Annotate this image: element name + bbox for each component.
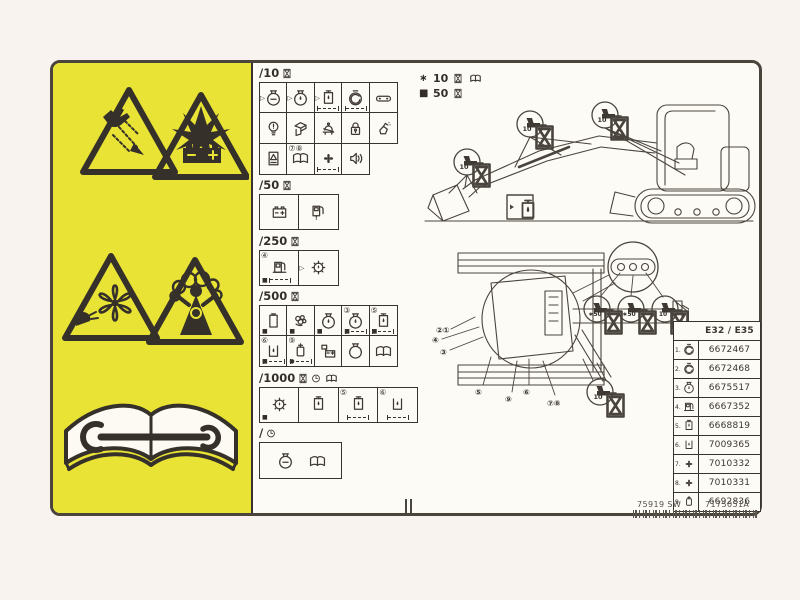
svg-text:∗50: ∗50 — [588, 311, 601, 318]
padlock-icon — [346, 119, 365, 138]
header-spacer — [674, 322, 699, 340]
svg-text:∗50: ∗50 — [622, 311, 635, 318]
battery-icon — [270, 203, 289, 222]
row-number: 1. — [675, 347, 681, 354]
pot-plain-icon — [346, 342, 365, 361]
excavator-side-view-drawing: 10 10 10 — [419, 89, 757, 241]
callout-5: ⑤ — [475, 388, 482, 397]
travel-dashes — [347, 415, 369, 420]
box-drop-icon — [319, 89, 338, 108]
maintenance-task-cell — [341, 82, 370, 114]
maintenance-task-cell: ▷ — [298, 250, 339, 286]
interval-hours-text: /1000 — [259, 372, 295, 385]
part-number: 6672467 — [699, 345, 760, 355]
air-round-icon — [346, 89, 365, 108]
interval-section-: / — [259, 427, 419, 478]
maintenance-task-cell — [314, 112, 343, 144]
part-number: 7010331 — [699, 478, 760, 488]
item-number-badge: ⑤ — [371, 306, 378, 315]
air-round-icon — [682, 343, 696, 357]
part-number: 7010332 — [699, 459, 760, 469]
icon-row: ⑦⑧ — [259, 143, 419, 175]
check-arrow: ▷ — [287, 94, 292, 102]
maintenance-task-cell: ■ — [286, 305, 315, 337]
maintenance-task-cell — [268, 445, 302, 477]
callout-3: ③ — [440, 348, 447, 357]
row-number: 5. — [675, 423, 681, 430]
maintenance-task-cell: ⑦⑧ — [286, 143, 315, 175]
box-drop-icon — [682, 419, 696, 433]
maintenance-task-cell: ▷ — [286, 82, 315, 114]
warning-triangle-entanglement-icon — [149, 260, 241, 342]
svg-text:10: 10 — [522, 125, 532, 133]
grease-callout-10h: 10 — [454, 149, 490, 187]
icon-row: ④■▷ — [259, 250, 419, 286]
pot-drop-icon — [291, 89, 310, 108]
svg-text:10: 10 — [659, 311, 667, 318]
item-number-badge: ⑥ — [379, 388, 386, 397]
barcode — [633, 510, 757, 518]
interval-hours-text: / — [259, 427, 263, 440]
maintenance-task-cell: ③■ — [341, 305, 370, 337]
warning-triangle-injection-icon — [83, 90, 175, 172]
registration-mark — [410, 499, 412, 513]
interval-label: /1000 — [259, 372, 419, 385]
part-number: 6667352 — [699, 402, 760, 412]
travel-dashes — [317, 167, 339, 172]
item-number-badge: ④ — [261, 251, 268, 260]
pump-icon — [682, 400, 696, 414]
interval-marker: ■ — [262, 415, 268, 421]
table-row: 2.6672468 — [674, 360, 760, 379]
icon-row — [259, 194, 419, 230]
pot-dash-icon — [264, 89, 283, 108]
warning-panel — [53, 63, 253, 513]
pump-icon — [270, 258, 289, 277]
air-round-icon — [682, 362, 696, 376]
row-icon-cell: 3. — [674, 379, 699, 397]
parts-table-body: 1.66724672.66724683.66755174.66673525.66… — [674, 341, 760, 511]
book-icon — [468, 72, 483, 85]
maintenance-task-cell — [369, 112, 398, 144]
tank-drop-icon — [682, 438, 696, 452]
row-icon-cell: 5. — [674, 417, 699, 435]
callout-7-8: ⑦⑧ — [547, 399, 561, 408]
grease-callout-10h: 10 — [592, 102, 628, 140]
row-number: 2. — [675, 366, 681, 373]
clock-icon — [311, 372, 321, 385]
maintenance-task-cell: ④■ — [259, 250, 300, 286]
row-number: 3. — [675, 385, 681, 392]
decal-part-number: 7175051A — [705, 500, 749, 509]
link-bar-icon — [374, 89, 393, 108]
icon-row: ■⑤⑥ — [259, 387, 419, 423]
row-number: 8. — [675, 480, 681, 487]
callout-2-1: ②① — [436, 326, 450, 335]
gear-drop-icon — [309, 258, 328, 277]
maintenance-task-cell — [341, 143, 370, 175]
icon-row: ▷▷▷ — [259, 82, 419, 114]
hg-box-icon — [298, 372, 308, 385]
maintenance-task-cell: ▷ — [259, 82, 288, 114]
hg-box-icon — [282, 67, 292, 80]
interval-marker: ■ — [262, 278, 268, 284]
star-bullet: ∗ — [419, 73, 428, 84]
svg-text:10: 10 — [459, 163, 469, 171]
travel-dashes — [269, 278, 291, 283]
grease-fitting-detail-circle — [573, 242, 663, 301]
seatbelt-icon — [319, 119, 338, 138]
battery-box-icon — [319, 342, 338, 361]
model-header: E32 / E35 — [699, 326, 760, 336]
boxed-icon-group — [259, 442, 342, 478]
interval-section-50: /50 — [259, 179, 419, 230]
travel-dashes — [345, 106, 367, 111]
svg-text:10: 10 — [593, 393, 603, 401]
maintenance-task-cell — [341, 112, 370, 144]
grease-callout-50h: ∗50 — [584, 296, 622, 334]
maintenance-task-cell: ⑤ — [338, 387, 379, 423]
hydraulic-check-box-icon — [507, 195, 534, 219]
maintenance-task-cell — [300, 445, 334, 477]
scanned-decal-page: /10▷▷▷⑦⑧/50/250④■▷/500■■■③■⑤■⑥■⑨●/1000■⑤… — [0, 0, 800, 600]
item-number-badge: ⑤ — [340, 388, 347, 397]
part-number: 7009365 — [699, 440, 760, 450]
gear-drop-icon — [270, 395, 289, 414]
travel-dashes — [290, 359, 312, 364]
interval-label: / — [259, 427, 419, 440]
fan-icon — [319, 149, 338, 168]
maintenance-task-cell — [259, 112, 288, 144]
table-row: 3.6675517 — [674, 379, 760, 398]
decal-code-left: 75919 SW — [637, 500, 681, 509]
row-icon-cell: 2. — [674, 360, 699, 378]
grease-callout-10h-bottom: 10 — [583, 359, 624, 417]
travel-dashes — [317, 106, 339, 111]
table-row: 8.7010331 — [674, 474, 760, 493]
row-icon-cell: 8. — [674, 474, 699, 492]
warning-pictograms — [53, 63, 249, 507]
part-number: 6672468 — [699, 364, 760, 374]
hg-box-icon — [282, 179, 292, 192]
travel-dashes — [372, 329, 394, 334]
box-drop-icon — [309, 395, 328, 414]
interval-label: /500 — [259, 290, 419, 303]
row-icon-cell: 1. — [674, 341, 699, 359]
travel-dashes — [387, 415, 409, 420]
table-row: 1.6672467 — [674, 341, 760, 360]
book-icon — [308, 452, 327, 471]
parts-table: E32 / E35 1.66724672.66724683.66755174.6… — [673, 321, 761, 512]
grease-callout-50h: ∗50 — [618, 296, 656, 334]
parts-table-header: E32 / E35 — [674, 322, 760, 341]
maintenance-task-cell — [259, 194, 300, 230]
interval-marker: ■ — [317, 329, 323, 335]
travel-dashes — [263, 359, 285, 364]
legend-value: 10 — [433, 72, 448, 85]
icon-row: ⑥■⑨● — [259, 335, 419, 367]
maintenance-task-cell — [341, 335, 370, 367]
callout-9: ⑨ — [505, 395, 512, 404]
spray-icon — [374, 119, 393, 138]
maintenance-task-cell: ▷ — [314, 82, 343, 114]
row-icon-cell: 7. — [674, 455, 699, 473]
maintenance-task-cell: ■ — [259, 387, 300, 423]
hg-box-icon — [290, 235, 300, 248]
interval-hours-text: /500 — [259, 290, 287, 303]
item-number-badge: ③ — [343, 306, 350, 315]
hourglass-icon — [453, 72, 463, 85]
interval-label: /50 — [259, 179, 419, 192]
warning-triangle-fan-icon — [65, 256, 157, 338]
maintenance-task-cell: ■ — [314, 305, 343, 337]
svg-text:10: 10 — [597, 116, 607, 124]
interval-section-250: /250④■▷ — [259, 235, 419, 286]
check-arrow: ▷ — [260, 94, 265, 102]
maintenance-task-cell — [259, 143, 288, 175]
fan-icon — [682, 476, 696, 490]
check-arrow: ▷ — [299, 264, 304, 272]
check-arrow: ▷ — [315, 94, 320, 102]
maintenance-task-cell: ⑤■ — [369, 305, 398, 337]
chute-icon — [291, 119, 310, 138]
interval-label: /10 — [259, 67, 419, 80]
service-intervals-column: /10▷▷▷⑦⑧/50/250④■▷/500■■■③■⑤■⑥■⑨●/1000■⑤… — [259, 67, 419, 485]
manual-book-wrench-icon — [66, 406, 236, 469]
maintenance-task-cell — [314, 143, 343, 175]
row-icon-cell: 4. — [674, 398, 699, 416]
maintenance-task-cell — [286, 112, 315, 144]
interval-label: /250 — [259, 235, 419, 248]
clock-icon — [266, 427, 276, 440]
travel-dashes — [345, 329, 367, 334]
icon-row — [259, 112, 419, 144]
tank-drop-icon — [388, 395, 407, 414]
interval-section-500: /500■■■③■⑤■⑥■⑨● — [259, 290, 419, 367]
row-number: 6. — [675, 442, 681, 449]
maintenance-task-cell: ⑥■ — [259, 335, 288, 367]
part-number: 6668819 — [699, 421, 760, 431]
icon-row — [268, 445, 333, 477]
interval-marker: ■ — [289, 329, 295, 335]
maintenance-task-cell: ⑨● — [286, 335, 315, 367]
maintenance-task-cell — [369, 82, 398, 114]
sign-box-icon — [264, 149, 283, 168]
interval-section-10: /10▷▷▷⑦⑧ — [259, 67, 419, 175]
maintenance-task-cell: ⑥ — [377, 387, 418, 423]
item-number-badge: ⑨ — [288, 336, 295, 345]
item-number-badge: ⑦⑧ — [288, 144, 302, 153]
bulb-icon — [264, 119, 283, 138]
row-number: 4. — [675, 404, 681, 411]
interval-section-1000: /1000■⑤⑥ — [259, 372, 419, 423]
hg-box-icon — [290, 290, 300, 303]
interval-marker: ■ — [262, 329, 268, 335]
legend-row-10h: ∗ 10 — [419, 71, 483, 86]
maintenance-task-cell — [298, 387, 339, 423]
pump-drain-icon — [309, 203, 328, 222]
part-number: 6675517 — [699, 383, 760, 393]
item-number-badge: ⑥ — [261, 336, 268, 345]
icon-row: ■■■③■⑤■ — [259, 305, 419, 337]
pot-dash-icon — [276, 452, 295, 471]
horn-icon — [346, 149, 365, 168]
interval-hours-text: /50 — [259, 179, 279, 192]
maintenance-task-cell — [314, 335, 343, 367]
table-row: 4.6667352 — [674, 398, 760, 417]
book-icon — [374, 342, 393, 361]
maintenance-task-cell: ■ — [259, 305, 288, 337]
interval-hours-text: /10 — [259, 67, 279, 80]
maintenance-decal: /10▷▷▷⑦⑧/50/250④■▷/500■■■③■⑤■⑥■⑨●/1000■⑤… — [50, 60, 762, 516]
fan-icon — [682, 457, 696, 471]
maintenance-task-cell — [369, 335, 398, 367]
box-drop-icon — [349, 395, 368, 414]
callout-7-8: ⑥ — [523, 388, 530, 397]
table-row: 7.7010332 — [674, 455, 760, 474]
grease-callout-10h: 10 — [517, 111, 553, 149]
book-icon — [324, 372, 339, 385]
pot-drop-icon — [682, 381, 696, 395]
filter-round-icon — [682, 495, 696, 509]
row-number: 7. — [675, 461, 681, 468]
maintenance-task-cell — [298, 194, 339, 230]
table-row: 6.7009365 — [674, 436, 760, 455]
table-row: 5.6668819 — [674, 417, 760, 436]
registration-mark — [405, 499, 407, 513]
excavator-top-view-drawing: ②① ④ ③ ⑤ ⑨ ⑥ ⑦⑧ ∗50 — [425, 239, 689, 483]
row-icon-cell: 6. — [674, 436, 699, 454]
callout-4: ④ — [432, 336, 439, 345]
interval-hours-text: /250 — [259, 235, 287, 248]
